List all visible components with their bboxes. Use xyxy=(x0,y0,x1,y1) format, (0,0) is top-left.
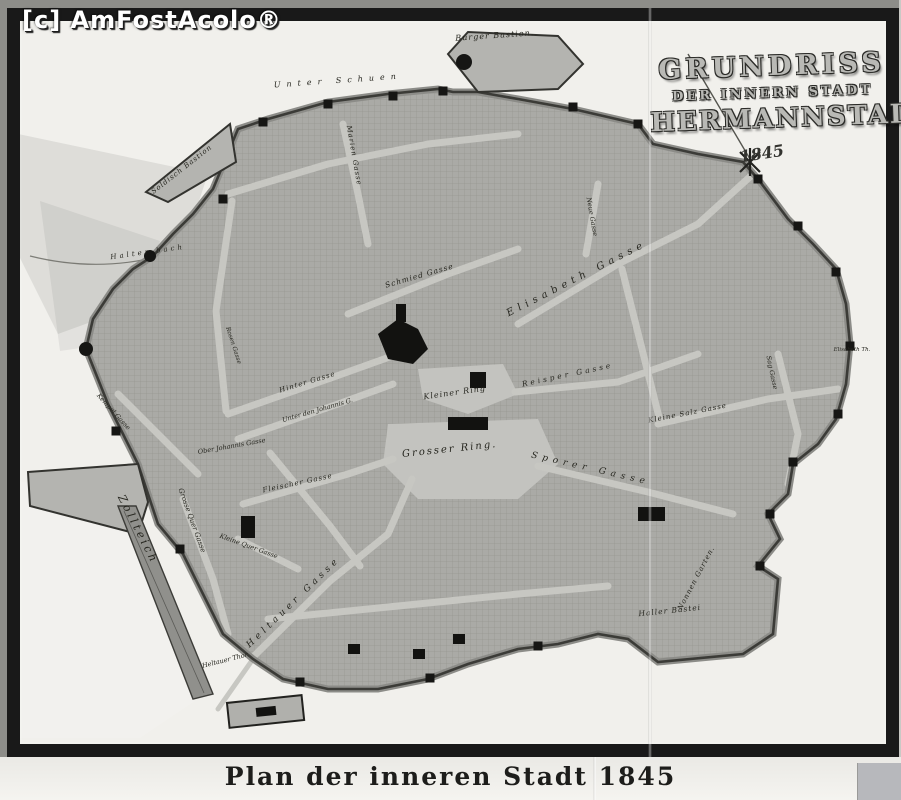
caption-crease xyxy=(593,757,596,800)
map-title-cartouche: GRUNDRISS DER INNERN STADT HERMANNSTADT … xyxy=(648,47,898,166)
street-label-unter-schuen: Unter Schuen xyxy=(273,72,402,90)
corner-patch xyxy=(857,763,901,800)
page-caption: Plan der inneren Stadt 1845 xyxy=(0,757,901,800)
watermark-logo: [c] AmFostAcolo® xyxy=(22,6,282,34)
map-photo: Burger Bastion.Soldisch BastionHalter ba… xyxy=(7,8,899,757)
photo-margin-left xyxy=(0,0,7,757)
scanned-map-page: { "watermark": "[c] AmFostAcolo®", "phot… xyxy=(0,0,901,800)
street-label-elisabeth-thor: Elisabeth Th. xyxy=(833,347,871,353)
barracks-building xyxy=(227,695,304,728)
street-label-heltauer-thor: Heltauer Thor. xyxy=(200,650,250,670)
